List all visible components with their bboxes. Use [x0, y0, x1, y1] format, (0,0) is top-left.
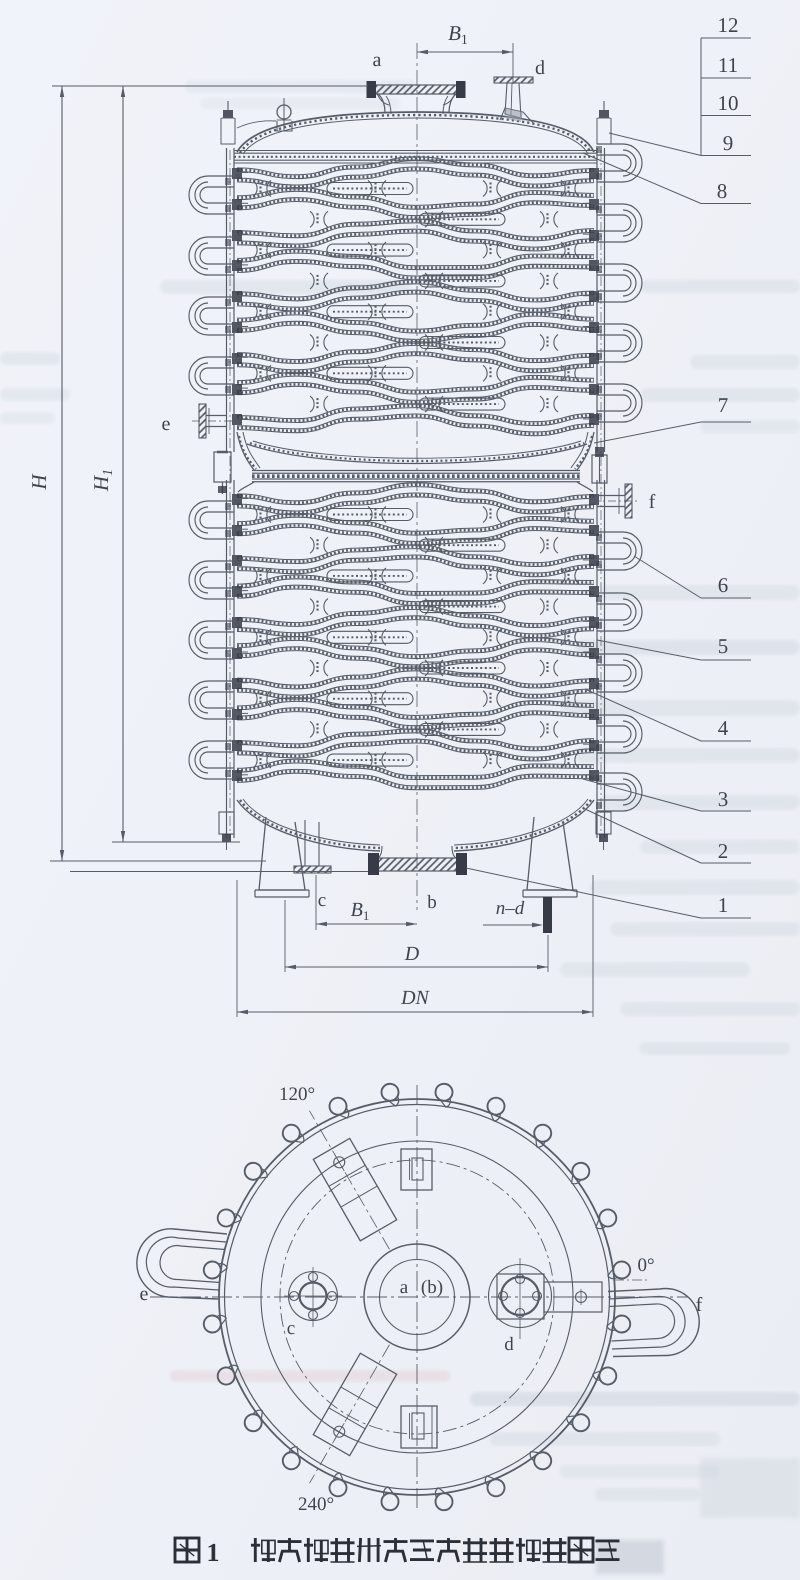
svg-text:2: 2	[718, 839, 729, 863]
svg-text:a: a	[400, 1277, 409, 1298]
svg-text:1: 1	[718, 893, 729, 917]
svg-text:12: 12	[718, 13, 739, 37]
svg-text:120°: 120°	[279, 1084, 315, 1105]
svg-text:10: 10	[718, 91, 739, 115]
svg-text:d: d	[535, 57, 545, 79]
svg-text:9: 9	[723, 131, 734, 155]
svg-text:5: 5	[718, 634, 729, 658]
svg-text:f: f	[649, 491, 656, 513]
svg-text:e: e	[162, 413, 171, 435]
svg-text:e: e	[140, 1283, 149, 1305]
svg-text:(b): (b)	[421, 1277, 443, 1298]
svg-text:11: 11	[718, 53, 738, 77]
svg-text:a: a	[373, 49, 382, 71]
svg-text:4: 4	[718, 716, 729, 740]
svg-text:240°: 240°	[298, 1494, 334, 1515]
svg-text:n–d: n–d	[496, 898, 525, 919]
svg-text:c: c	[287, 1318, 295, 1339]
svg-text:1: 1	[207, 1538, 220, 1567]
svg-text:b: b	[427, 892, 437, 913]
svg-text:3: 3	[718, 787, 729, 811]
svg-text:f: f	[696, 1294, 703, 1316]
svg-text:D: D	[404, 943, 420, 965]
svg-text:c: c	[318, 890, 326, 911]
svg-text:6: 6	[718, 573, 729, 597]
svg-text:0°: 0°	[637, 1255, 654, 1276]
svg-text:8: 8	[717, 179, 728, 203]
svg-text:7: 7	[718, 393, 729, 417]
svg-text:d: d	[504, 1334, 514, 1355]
svg-text:H: H	[27, 473, 51, 491]
svg-text:DN: DN	[400, 987, 430, 1009]
